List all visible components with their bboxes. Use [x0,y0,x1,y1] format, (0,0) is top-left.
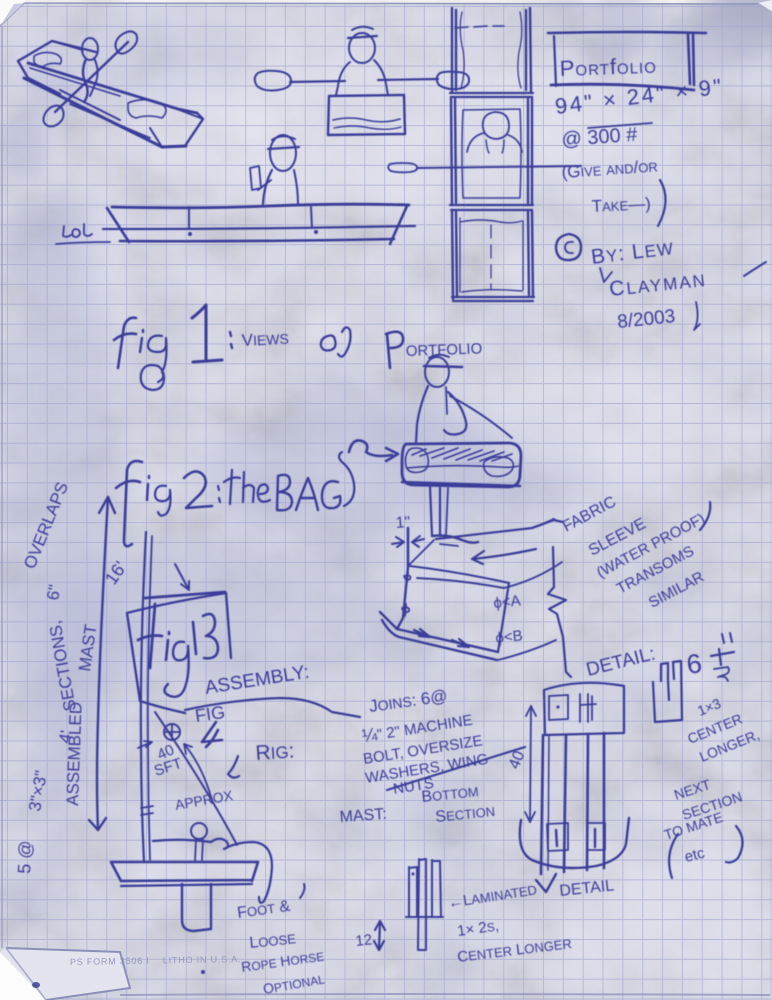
svg-text:ϕ<A: ϕ<A [493,592,522,612]
svg-text:ϕ<B: ϕ<B [495,627,524,647]
svg-text:5 @: 5 @ [14,840,36,874]
svg-text:ASSEMBLED: ASSEMBLED [63,702,86,807]
svg-text:VIEWS: VIEWS [241,329,289,350]
svg-text:MAST:: MAST: [339,806,387,826]
svg-text:RIG:: RIG: [255,739,295,765]
svg-text:ORTFOLIO: ORTFOLIO [406,340,483,360]
svg-text:6": 6" [43,583,64,602]
svg-text:FIG: FIG [194,702,226,726]
svg-text:12: 12 [355,931,373,950]
